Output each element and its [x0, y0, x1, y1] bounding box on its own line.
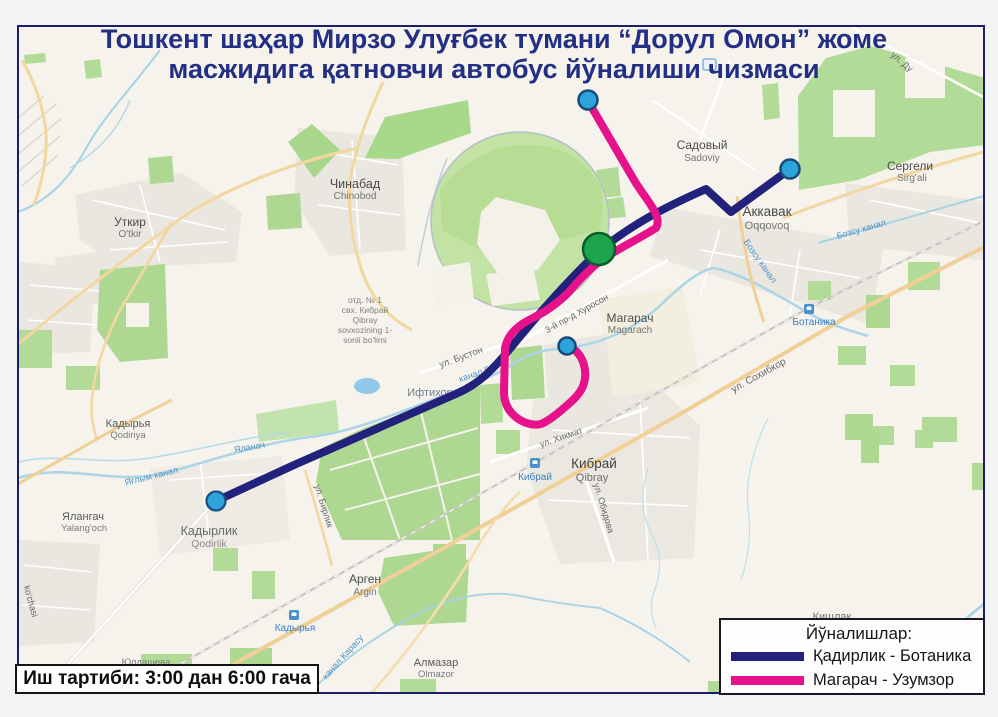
svg-text:отд. № 1: отд. № 1	[348, 295, 382, 305]
svg-text:Алмазар: Алмазар	[414, 657, 459, 669]
svg-text:свх. Кибрай: свх. Кибрай	[342, 305, 389, 315]
svg-text:Кибрай: Кибрай	[571, 456, 617, 471]
svg-text:sonli bo'limi: sonli bo'limi	[343, 335, 387, 345]
svg-text:Qodirlik: Qodirlik	[191, 538, 227, 550]
svg-text:Сергели: Сергели	[887, 159, 933, 173]
svg-text:Magarach: Magarach	[608, 325, 652, 336]
svg-text:Qodiriya: Qodiriya	[110, 430, 146, 441]
svg-text:Кибрай: Кибрай	[518, 471, 552, 483]
svg-text:Ботаника: Ботаника	[792, 317, 836, 328]
svg-text:Садовый: Садовый	[677, 138, 728, 152]
svg-text:Кадырья: Кадырья	[275, 623, 316, 634]
svg-text:Кадырлик: Кадырлик	[181, 524, 238, 538]
svg-text:Ялангач: Ялангач	[62, 511, 104, 523]
svg-text:Чинабад: Чинабад	[330, 177, 381, 191]
svg-text:Yalang'och: Yalang'och	[61, 523, 107, 534]
svg-text:Qibray: Qibray	[352, 315, 378, 325]
svg-text:Chinobod: Chinobod	[334, 191, 377, 202]
svg-text:Аккавак: Аккавак	[742, 204, 791, 219]
svg-text:Уткир: Уткир	[114, 215, 146, 229]
svg-text:Qibray: Qibray	[576, 472, 609, 484]
svg-text:Argin: Argin	[353, 587, 376, 598]
svg-text:Арген: Арген	[349, 572, 381, 586]
svg-text:Магарач: Магарач	[607, 311, 654, 325]
svg-text:Кадырья: Кадырья	[106, 418, 151, 430]
svg-text:Sirg'ali: Sirg'ali	[897, 173, 927, 184]
svg-text:O'tkir: O'tkir	[118, 229, 142, 240]
svg-text:Olmazor: Olmazor	[418, 669, 454, 680]
svg-text:Sadoviy: Sadoviy	[684, 153, 720, 164]
svg-text:sovxozining 1-: sovxozining 1-	[338, 325, 393, 335]
svg-text:Oqqovoq: Oqqovoq	[745, 220, 790, 232]
